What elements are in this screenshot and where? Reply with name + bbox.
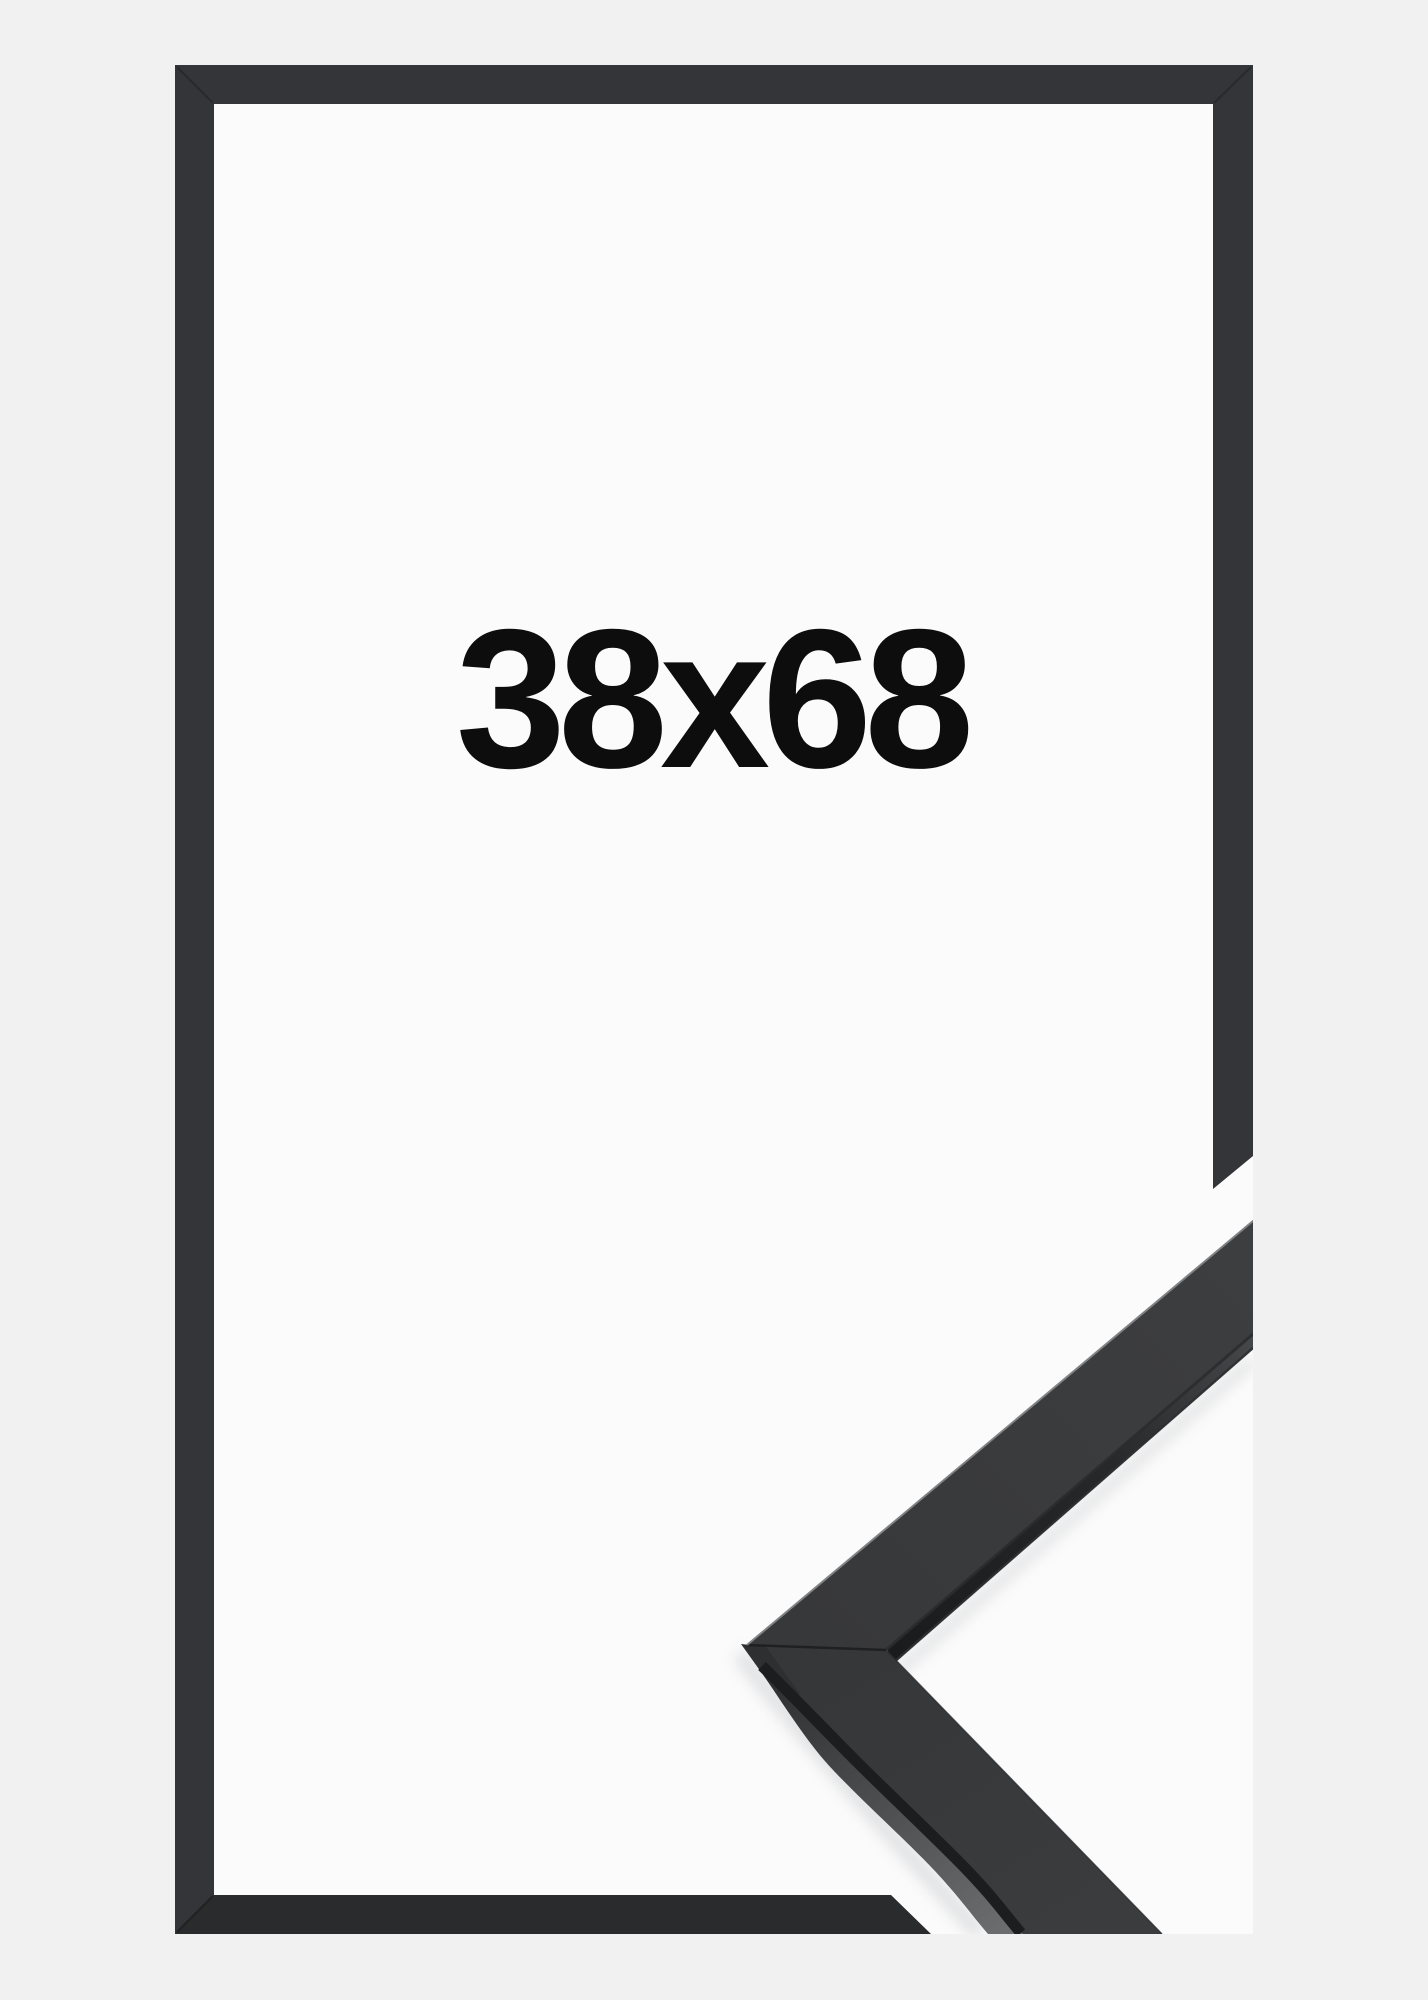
svg-text:38x68: 38x68 bbox=[456, 588, 969, 809]
